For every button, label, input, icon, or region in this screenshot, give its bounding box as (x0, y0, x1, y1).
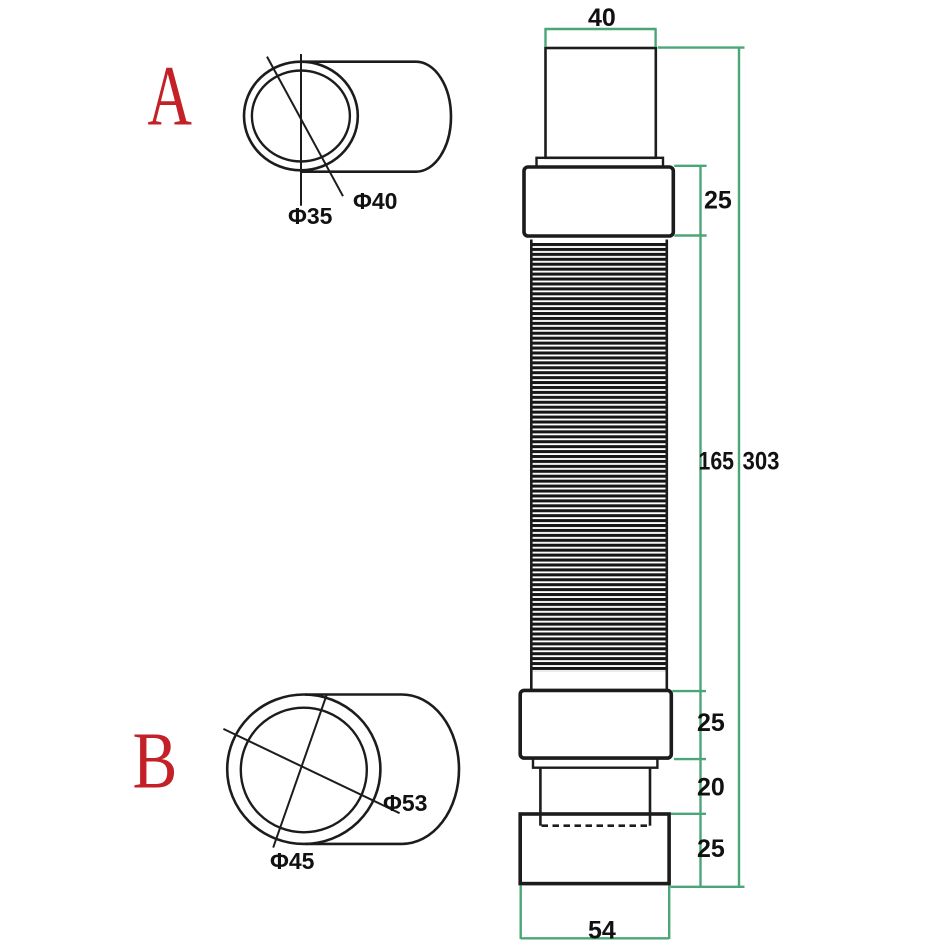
svg-text:A: A (148, 49, 192, 144)
svg-text:20: 20 (697, 774, 725, 802)
svg-text:Φ45: Φ45 (270, 848, 315, 874)
svg-text:Φ40: Φ40 (353, 188, 397, 214)
svg-text:165: 165 (699, 448, 735, 476)
svg-text:Φ35: Φ35 (288, 203, 333, 229)
svg-text:Φ53: Φ53 (383, 790, 427, 816)
svg-text:25: 25 (697, 835, 725, 863)
svg-text:54: 54 (588, 917, 616, 940)
svg-text:25: 25 (697, 709, 725, 737)
svg-text:25: 25 (704, 187, 732, 215)
svg-text:B: B (133, 717, 178, 806)
svg-text:303: 303 (743, 448, 780, 476)
svg-text:40: 40 (588, 4, 616, 32)
